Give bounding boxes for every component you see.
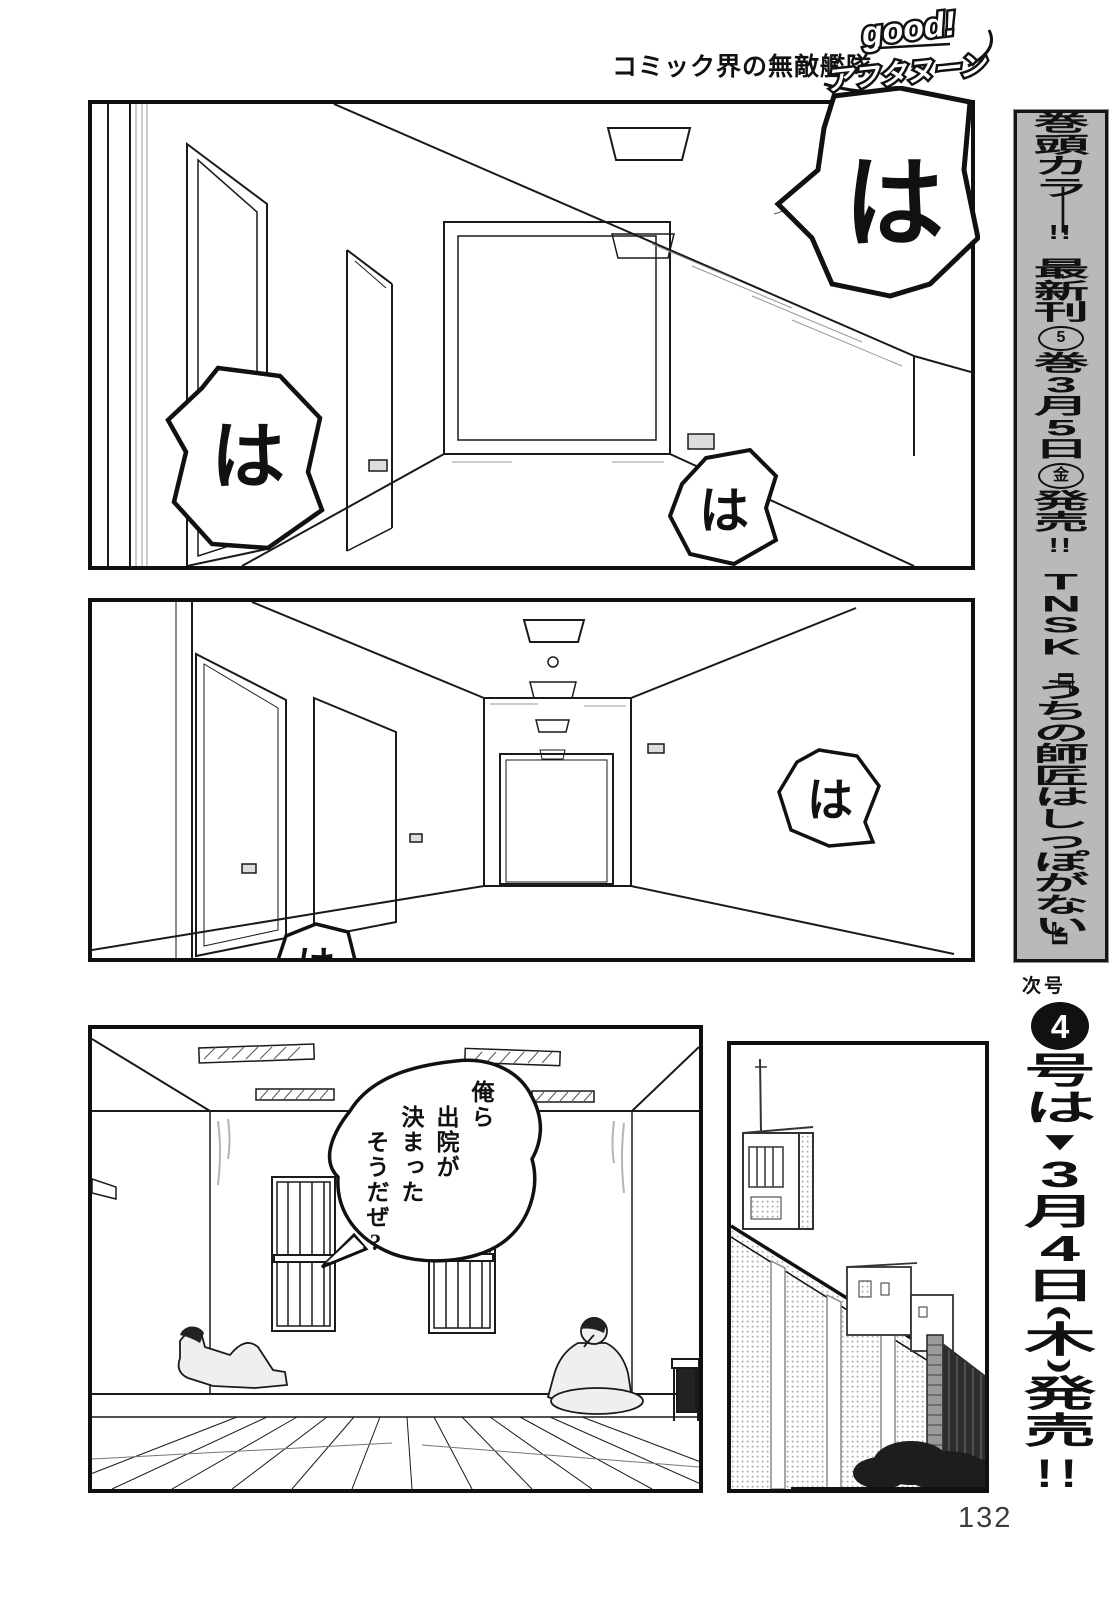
panel-4-art [731, 1045, 985, 1489]
next-issue-label: 次号 [1022, 971, 1066, 998]
sfx-bubble-4: は [775, 742, 885, 852]
manga-page: コミック界の無敵艦隊 good! アフタヌーン 巻頭カラー!!最新刊5巻3月5日… [0, 0, 1115, 1600]
sfx-text-2: は [211, 415, 285, 498]
next-issue-announcement: 4号は▼3月4日(木)発売!! [1010, 1002, 1110, 1507]
sfx-bubble-3: は [664, 446, 782, 570]
sfx-bubble-2: は [162, 360, 332, 556]
promo-banner-text: 巻頭カラー!!最新刊5巻3月5日金発売!!TNSK『うちの師匠はしっぽがない』 [1017, 113, 1105, 959]
manga-panel-4 [727, 1041, 989, 1493]
sfx-text-4: は [807, 774, 853, 826]
promo-banner: 巻頭カラー!!最新刊5巻3月5日金発売!!TNSK『うちの師匠はしっぽがない』 [1014, 110, 1108, 962]
sfx-text-3: は [699, 483, 749, 539]
sfx-text-partial: は [297, 945, 335, 958]
next-issue-text: 4号は▼3月4日(木)発売!! [1010, 1002, 1110, 1507]
magazine-logo: good! アフタヌーン [818, 4, 998, 98]
sfx-bubble-1: は [772, 86, 980, 300]
dialogue-text: 俺ら 出院が 決まった そうだぜ? [358, 1080, 498, 1280]
sfx-text-1: は [844, 148, 944, 260]
page-number: 132 [958, 1502, 1012, 1535]
